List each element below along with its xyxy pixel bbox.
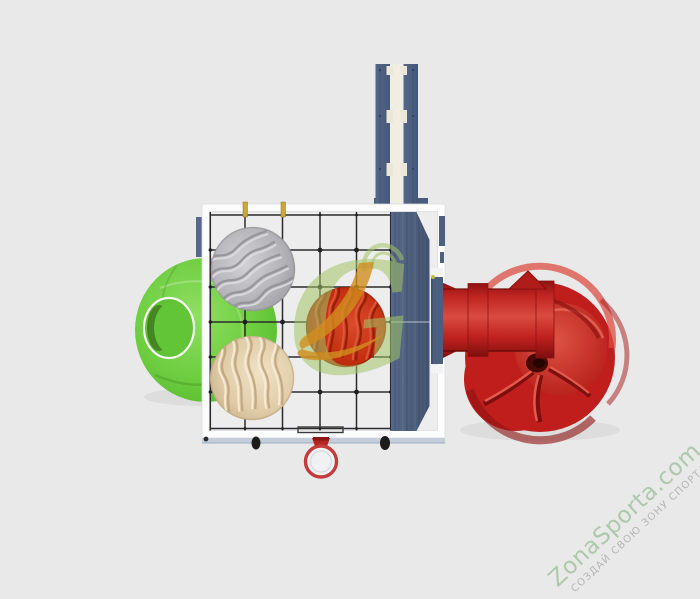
logo-letter: G xyxy=(279,226,425,414)
slide-tube xyxy=(441,282,551,359)
playground-top-view: G xyxy=(0,0,700,599)
slide-flange xyxy=(431,277,443,364)
product-render: G ZonaSporta.com СОЗДАЙ СВОЮ ЗОНУ СПОРТА xyxy=(0,0,700,599)
logo-watermark: G xyxy=(279,226,425,414)
